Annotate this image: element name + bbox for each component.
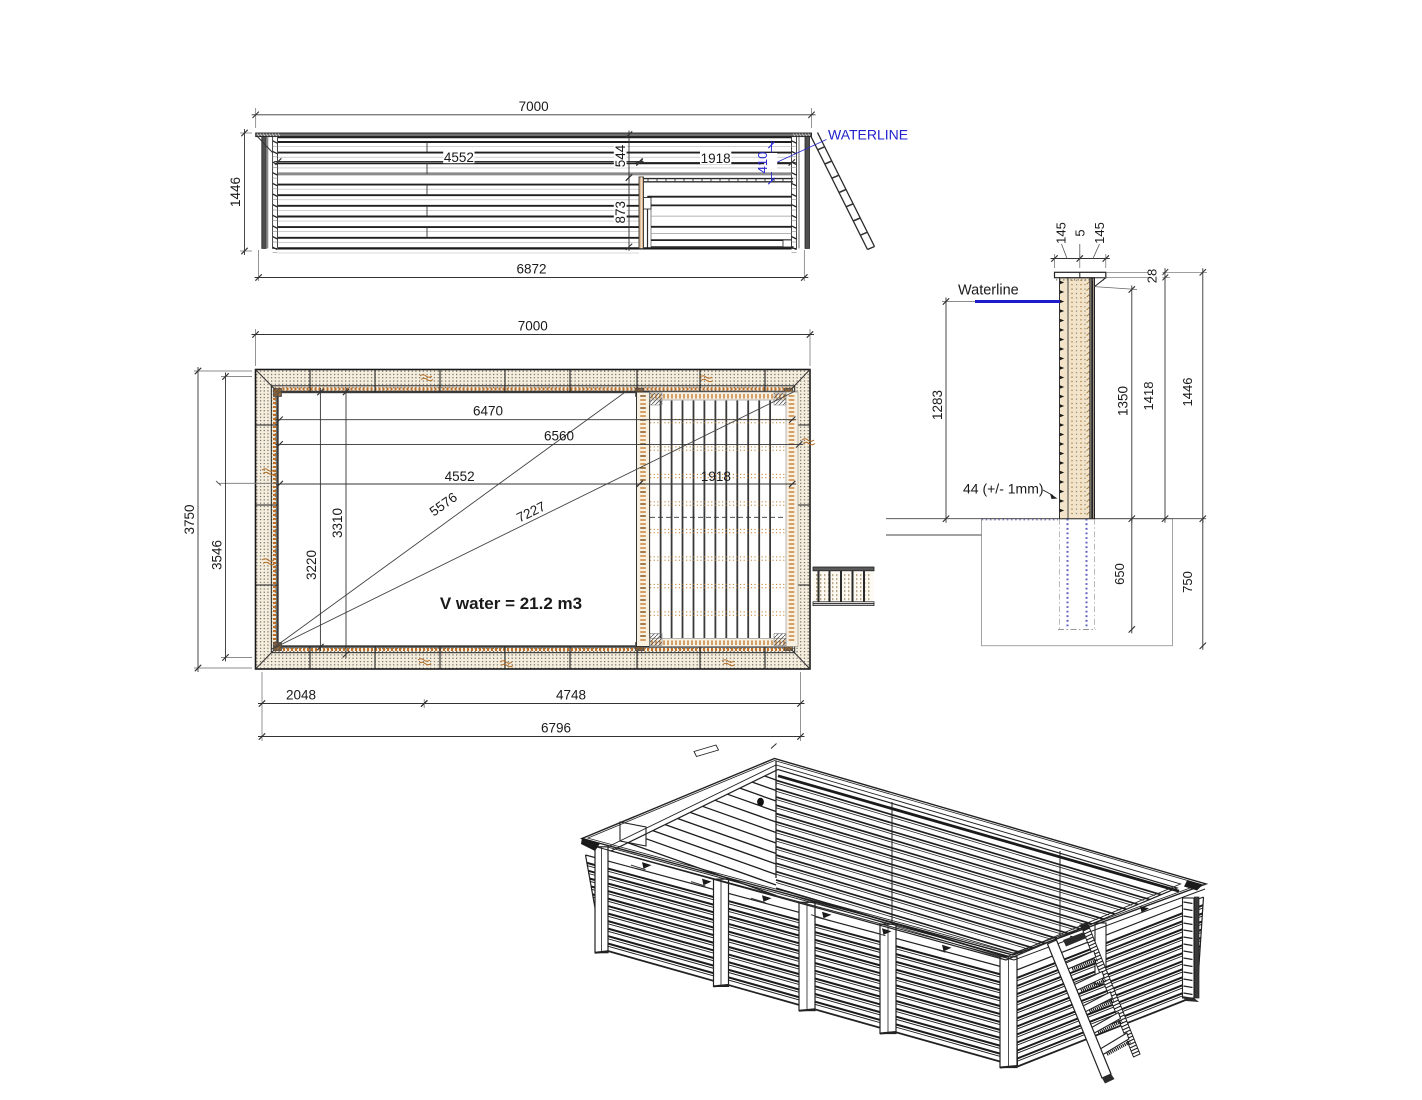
- svg-text:5: 5: [1072, 229, 1087, 236]
- svg-text:6470: 6470: [473, 404, 503, 419]
- svg-text:1446: 1446: [228, 177, 243, 207]
- svg-text:4552: 4552: [444, 150, 474, 165]
- svg-text:WATERLINE: WATERLINE: [828, 127, 908, 143]
- svg-text:7000: 7000: [518, 319, 548, 334]
- svg-text:4748: 4748: [556, 688, 586, 703]
- svg-text:6872: 6872: [516, 262, 546, 277]
- svg-text:1283: 1283: [930, 390, 945, 420]
- svg-text:1350: 1350: [1116, 386, 1131, 416]
- svg-text:1918: 1918: [701, 151, 731, 166]
- svg-text:1418: 1418: [1141, 382, 1156, 411]
- svg-text:6560: 6560: [544, 428, 574, 443]
- svg-text:3750: 3750: [182, 504, 197, 534]
- svg-text:28: 28: [1145, 269, 1160, 283]
- svg-text:4552: 4552: [445, 469, 475, 484]
- svg-text:44 (+/- 1mm): 44 (+/- 1mm): [963, 481, 1044, 497]
- svg-text:873: 873: [613, 201, 628, 224]
- svg-text:V water = 21.2 m3: V water = 21.2 m3: [440, 594, 582, 613]
- svg-text:145: 145: [1092, 222, 1107, 244]
- svg-text:3546: 3546: [209, 540, 224, 570]
- svg-text:2048: 2048: [286, 688, 316, 703]
- svg-text:6796: 6796: [541, 721, 571, 736]
- svg-text:7000: 7000: [519, 99, 549, 114]
- svg-text:410: 410: [755, 152, 770, 174]
- svg-text:Waterline: Waterline: [958, 283, 1019, 299]
- svg-text:3220: 3220: [304, 550, 319, 580]
- svg-text:650: 650: [1112, 563, 1127, 585]
- svg-text:750: 750: [1180, 571, 1195, 593]
- svg-text:544: 544: [613, 144, 628, 167]
- svg-text:3310: 3310: [330, 508, 345, 538]
- svg-text:145: 145: [1054, 222, 1069, 244]
- svg-text:1918: 1918: [701, 469, 731, 484]
- svg-text:1446: 1446: [1180, 378, 1195, 407]
